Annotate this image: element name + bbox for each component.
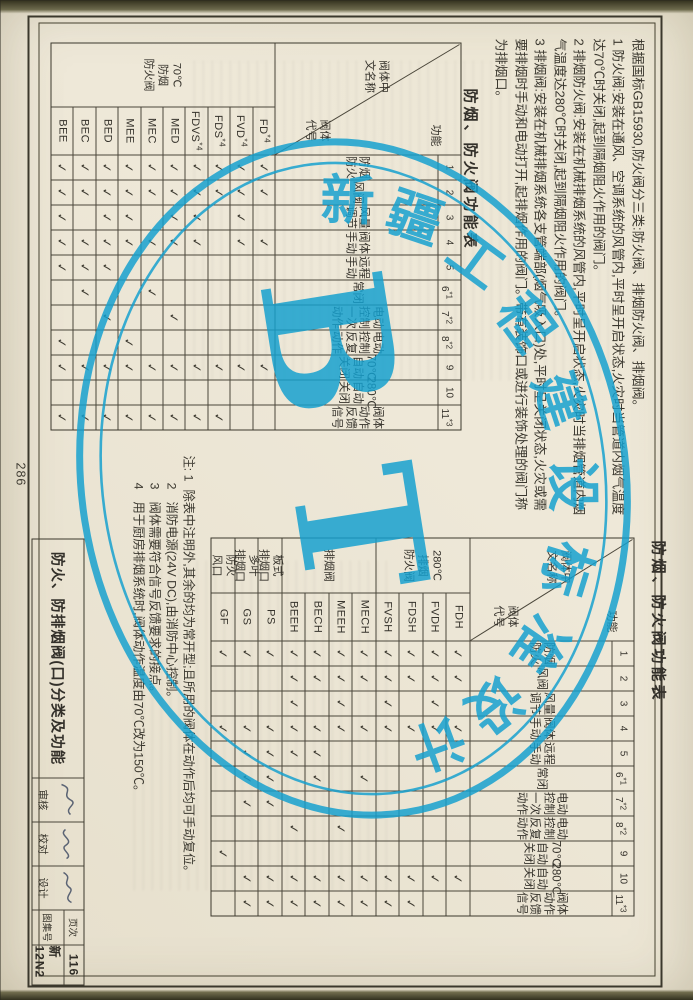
- check-cell: ✓: [422, 691, 446, 716]
- function-number-cell: 7*2: [611, 791, 633, 816]
- check-cell: ✓: [305, 866, 329, 891]
- check-cell: [305, 841, 329, 866]
- check-cell: [207, 305, 229, 330]
- check-cell: [229, 280, 251, 305]
- check-cell: [375, 741, 399, 766]
- header-corner-cell: 功能阀体中文名称阀体代号: [274, 43, 460, 155]
- function-number-cell: 9: [611, 841, 633, 866]
- check-cell: [117, 305, 139, 330]
- check-cell: [207, 205, 229, 230]
- check-cell: [305, 816, 329, 841]
- valve-code-cell: MECH: [352, 593, 376, 641]
- check-cell: ✓: [50, 330, 72, 355]
- title-block: 防火、防排烟阀(口)分类及功能 审核 校对 设计 页次 116 图集号: [31, 538, 84, 985]
- check-cell: ✓: [72, 280, 94, 305]
- function-number-cell: 3: [437, 205, 460, 230]
- function-name-cell: 阀体手动: [469, 716, 611, 741]
- function-name-cell: 远程手动: [469, 741, 611, 766]
- book-page-number: 286: [13, 462, 27, 486]
- function-table-280c: 功能阀体中文名称阀体代号1防烟防火2风阀3风量调节4阀体手动5远程手动6*1常闭…: [211, 538, 634, 916]
- function-number-cell: 2: [611, 666, 633, 691]
- function-name-cell: 常闭: [274, 280, 437, 305]
- check-cell: ✓: [95, 405, 117, 430]
- check-cell: [446, 741, 470, 766]
- valve-name-cell: 防火风口: [211, 538, 235, 593]
- intro-note-line: 1 防火阀:安装在通风、空调系统的风管内,平时呈开启状态,火灾时当管道内烟气温度: [608, 38, 628, 543]
- function-number-cell: 10: [611, 866, 633, 891]
- valve-code-cell: FDH: [446, 593, 470, 641]
- check-cell: [258, 841, 282, 866]
- check-cell: ✓: [140, 230, 162, 255]
- check-cell: ✓: [446, 666, 470, 691]
- check-cell: ✓: [184, 230, 206, 255]
- function-name-cell: 电动控制反复动作: [469, 816, 611, 841]
- check-cell: ✓: [352, 891, 376, 916]
- classification-notes-paragraph: 根据国标GB15930,防火阀分三类:防火阀、排烟防火阀、排烟阀。1 防火阀:安…: [491, 38, 647, 543]
- check-cell: [352, 741, 376, 766]
- check-cell: [252, 280, 274, 305]
- function-name-cell: 280℃自动关闭: [469, 866, 611, 891]
- footnote-number: 4: [129, 455, 146, 501]
- check-cell: ✓: [399, 641, 423, 666]
- title-block-right: 页次 116 图集号 新12N2: [32, 910, 83, 984]
- check-cell: [162, 330, 184, 355]
- intro-note-line: 要排烟时手动和电动打开,起排烟作用的阀门。带有装饰口或进行装饰处理的阀门称: [511, 38, 531, 543]
- corner-label-function: 功能: [604, 610, 618, 632]
- function-number-cell: 6*1: [437, 280, 460, 305]
- check-cell: ✓: [281, 716, 305, 741]
- function-name-cell: 电动控制一次动作: [274, 305, 437, 330]
- check-cell: [375, 766, 399, 791]
- valve-code-cell: GF: [211, 593, 235, 641]
- book-edge-shadow: [0, 989, 693, 1000]
- check-cell: [234, 666, 258, 691]
- check-cell: [252, 380, 274, 405]
- check-cell: [184, 305, 206, 330]
- valve-code-cell: FVDH: [422, 593, 446, 641]
- check-cell: ✓: [117, 355, 139, 380]
- check-cell: ✓: [50, 230, 72, 255]
- valve-code-cell: BEE: [50, 107, 72, 155]
- footnote-text: 阀体需要符合信号反馈要求的接点。: [146, 501, 163, 698]
- check-cell: ✓: [328, 891, 352, 916]
- corner-label-valve-code: 阀体代号: [491, 595, 518, 637]
- check-cell: [229, 305, 251, 330]
- check-cell: ✓: [422, 666, 446, 691]
- check-cell: [446, 841, 470, 866]
- function-number-cell: 1: [611, 641, 633, 666]
- check-cell: [281, 766, 305, 791]
- check-cell: ✓: [184, 205, 206, 230]
- valve-code-cell: BED: [95, 107, 117, 155]
- check-cell: ✓: [328, 816, 352, 841]
- check-cell: ✓: [234, 766, 258, 791]
- footnote-number: 3: [146, 455, 163, 501]
- check-cell: ✓: [252, 180, 274, 205]
- check-cell: [95, 280, 117, 305]
- intro-note-line: 根据国标GB15930,防火阀分三类:防火阀、排烟防火阀、排烟阀。: [628, 38, 648, 543]
- drawing-title: 防火、防排烟阀(口)分类及功能: [32, 539, 83, 778]
- check-cell: [352, 691, 376, 716]
- check-cell: ✓: [281, 866, 305, 891]
- check-cell: ✓: [162, 405, 184, 430]
- check-cell: [252, 205, 274, 230]
- check-cell: [162, 280, 184, 305]
- check-cell: [234, 841, 258, 866]
- check-cell: ✓: [422, 716, 446, 741]
- check-cell: [399, 766, 423, 791]
- footnote-text: 除表中注明外,其余的均为常开型;且所用的阀体在动作后均可手动复位。: [179, 489, 196, 877]
- table2-title: 防烟、防火阀功能表: [648, 540, 669, 702]
- check-cell: ✓: [305, 891, 329, 916]
- check-cell: ✓: [258, 866, 282, 891]
- valve-code-cell: MEE: [117, 107, 139, 155]
- signature-mark: [53, 781, 79, 817]
- check-cell: [399, 841, 423, 866]
- check-cell: ✓: [72, 405, 94, 430]
- footnote-text: 用于厨房排烟系统时,阀体动作温度由70℃改为150℃。: [129, 501, 146, 797]
- function-name-cell: 风阀: [274, 180, 437, 205]
- check-cell: ✓: [258, 741, 282, 766]
- check-cell: [422, 766, 446, 791]
- check-cell: ✓: [229, 155, 251, 180]
- scanned-standard-page: 根据国标GB15930,防火阀分三类:防火阀、排烟防火阀、排烟阀。1 防火阀:安…: [0, 0, 693, 1000]
- check-cell: [229, 405, 251, 430]
- function-name-cell: 阀体动作反馈信号: [274, 405, 437, 430]
- valve-code-cell: FDS*4: [207, 107, 229, 155]
- check-cell: [184, 330, 206, 355]
- valve-code-cell: GS: [234, 593, 258, 641]
- check-cell: [162, 380, 184, 405]
- check-cell: ✓: [162, 305, 184, 330]
- valve-name-cell: 排烟阀: [281, 538, 375, 593]
- check-cell: ✓: [95, 205, 117, 230]
- corner-label-valve-name: 阀体中文名称: [362, 49, 389, 103]
- check-cell: ✓: [72, 355, 94, 380]
- check-cell: [352, 841, 376, 866]
- check-cell: [207, 280, 229, 305]
- function-name-cell: 防烟防火: [274, 155, 437, 180]
- corner-label-function: 功能: [428, 124, 442, 146]
- check-cell: [328, 791, 352, 816]
- sign-field-shenhe: 审核: [32, 778, 83, 822]
- valve-code-cell: FDVS*4: [184, 107, 206, 155]
- sign-label: 设计: [35, 866, 50, 909]
- check-cell: [229, 330, 251, 355]
- check-cell: [184, 380, 206, 405]
- function-number-cell: 10: [437, 380, 460, 405]
- check-cell: [140, 305, 162, 330]
- check-cell: ✓: [305, 641, 329, 666]
- check-cell: [50, 280, 72, 305]
- sign-label: 审核: [35, 778, 50, 821]
- check-cell: ✓: [207, 155, 229, 180]
- check-cell: ✓: [375, 891, 399, 916]
- valve-code-cell: FVSH: [375, 593, 399, 641]
- check-cell: [281, 841, 305, 866]
- header-corner-cell: 功能阀体中文名称阀体代号: [469, 538, 633, 641]
- check-cell: [140, 380, 162, 405]
- check-cell: [72, 330, 94, 355]
- check-cell: ✓: [258, 716, 282, 741]
- check-cell: [140, 330, 162, 355]
- check-cell: [207, 330, 229, 355]
- check-cell: ✓: [352, 666, 376, 691]
- valve-code-cell: FD*4: [252, 107, 274, 155]
- check-cell: ✓: [140, 280, 162, 305]
- check-cell: [229, 255, 251, 280]
- check-cell: [140, 205, 162, 230]
- check-cell: ✓: [281, 891, 305, 916]
- check-cell: ✓: [50, 405, 72, 430]
- check-cell: [95, 330, 117, 355]
- valve-name-cell: 280℃排烟防火阀: [375, 538, 469, 593]
- intro-note-line: 2 排烟防火阀:安装在机械排烟系统的风管内,平时呈开启状态,火灾时当排烟管道内烟: [569, 38, 589, 543]
- check-cell: ✓: [95, 155, 117, 180]
- check-cell: [50, 305, 72, 330]
- check-cell: ✓: [211, 841, 235, 866]
- check-cell: ✓: [207, 405, 229, 430]
- check-cell: ✓: [234, 716, 258, 741]
- function-name-cell: 远程手动: [274, 255, 437, 280]
- check-cell: ✓: [140, 155, 162, 180]
- valve-code-cell: MED: [162, 107, 184, 155]
- check-cell: ✓: [140, 355, 162, 380]
- check-cell: [207, 255, 229, 280]
- check-cell: [211, 866, 235, 891]
- function-number-cell: 4: [611, 716, 633, 741]
- check-cell: ✓: [422, 641, 446, 666]
- check-cell: [422, 741, 446, 766]
- intro-note-line: 为排烟口。: [491, 38, 511, 543]
- check-cell: [399, 816, 423, 841]
- check-cell: [211, 741, 235, 766]
- check-cell: ✓: [95, 180, 117, 205]
- corner-label-valve-name: 阀体中文名称: [544, 544, 571, 589]
- intro-note-line: 3 排烟阀:安装在机械排烟系统各支管端部(烟气吸入口)处,平时呈关闭状态,火灾或…: [530, 38, 550, 543]
- signature-mark: [53, 825, 79, 861]
- check-cell: ✓: [352, 716, 376, 741]
- check-cell: ✓: [184, 180, 206, 205]
- check-cell: ✓: [328, 666, 352, 691]
- valve-name-cell: 70℃防烟防火阀: [50, 43, 274, 107]
- valve-name-cell: 多叶排烟口: [234, 538, 258, 593]
- atlas-no-value: 新12N2: [32, 945, 63, 984]
- check-cell: ✓: [117, 230, 139, 255]
- check-cell: ✓: [50, 255, 72, 280]
- check-cell: [229, 380, 251, 405]
- check-cell: ✓: [50, 355, 72, 380]
- check-cell: [422, 891, 446, 916]
- check-cell: [211, 666, 235, 691]
- check-cell: ✓: [399, 716, 423, 741]
- check-cell: [375, 791, 399, 816]
- check-cell: ✓: [281, 741, 305, 766]
- table-footnotes: 注: 1除表中注明外,其余的均为常开型;且所用的阀体在动作后均可手动复位。2消防…: [129, 455, 196, 955]
- check-cell: ✓: [234, 891, 258, 916]
- check-cell: [422, 841, 446, 866]
- check-cell: [446, 891, 470, 916]
- function-name-cell: 电动控制反复动作: [274, 330, 437, 355]
- check-cell: ✓: [305, 766, 329, 791]
- check-cell: ✓: [229, 230, 251, 255]
- check-cell: ✓: [95, 355, 117, 380]
- function-number-cell: 5: [437, 255, 460, 280]
- check-cell: [50, 380, 72, 405]
- check-cell: [446, 791, 470, 816]
- check-cell: [352, 791, 376, 816]
- function-name-cell: 风量调节: [469, 691, 611, 716]
- function-table-70c: 功能阀体中文名称阀体代号1防烟防火2风阀3风量调节4阀体手动5远程手动6*1常闭…: [50, 43, 460, 430]
- check-cell: ✓: [352, 766, 376, 791]
- check-cell: [252, 255, 274, 280]
- check-cell: ✓: [422, 866, 446, 891]
- sign-field-jiaodui: 校对: [32, 822, 83, 866]
- check-cell: [72, 205, 94, 230]
- check-cell: [211, 791, 235, 816]
- check-cell: [95, 380, 117, 405]
- valve-code-cell: PS: [258, 593, 282, 641]
- check-cell: ✓: [328, 866, 352, 891]
- check-cell: ✓: [258, 891, 282, 916]
- valve-code-cell: BECH: [305, 593, 329, 641]
- check-cell: ✓: [117, 155, 139, 180]
- check-cell: ✓: [281, 691, 305, 716]
- check-cell: ✓: [252, 355, 274, 380]
- check-cell: [234, 691, 258, 716]
- check-cell: ✓: [352, 641, 376, 666]
- check-cell: [252, 405, 274, 430]
- table1-title: 防烟、防火阀功能表: [460, 88, 481, 250]
- signature-mark: [53, 869, 79, 905]
- check-cell: [252, 305, 274, 330]
- check-cell: [399, 741, 423, 766]
- check-cell: ✓: [446, 716, 470, 741]
- function-name-cell: 280℃自动关闭: [274, 380, 437, 405]
- check-cell: [305, 691, 329, 716]
- function-number-cell: 1: [437, 155, 460, 180]
- check-cell: ✓: [162, 180, 184, 205]
- check-cell: ✓: [258, 641, 282, 666]
- check-cell: [328, 841, 352, 866]
- check-cell: ✓: [234, 791, 258, 816]
- check-cell: ✓: [117, 180, 139, 205]
- check-cell: ✓: [234, 641, 258, 666]
- valve-code-cell: MEEH: [328, 593, 352, 641]
- check-cell: ✓: [211, 716, 235, 741]
- check-cell: ✓: [328, 641, 352, 666]
- check-cell: ✓: [140, 180, 162, 205]
- check-cell: ✓: [162, 230, 184, 255]
- function-number-cell: 8*2: [437, 330, 460, 355]
- function-number-cell: 11*3: [437, 405, 460, 430]
- corner-label-valve-code: 阀体代号: [303, 109, 330, 151]
- function-number-cell: 11*3: [611, 891, 633, 916]
- check-cell: [258, 691, 282, 716]
- book-edge-shadow: [0, 0, 693, 13]
- check-cell: [72, 380, 94, 405]
- check-cell: [207, 230, 229, 255]
- check-cell: ✓: [162, 355, 184, 380]
- check-cell: ✓: [184, 355, 206, 380]
- check-cell: [207, 380, 229, 405]
- function-name-cell: 风阀: [469, 666, 611, 691]
- function-name-cell: 阀体手动: [274, 230, 437, 255]
- check-cell: ✓: [95, 255, 117, 280]
- check-cell: [375, 816, 399, 841]
- check-cell: ✓: [50, 155, 72, 180]
- check-cell: ✓: [281, 816, 305, 841]
- check-cell: [352, 816, 376, 841]
- check-cell: ✓: [375, 866, 399, 891]
- function-number-cell: 2: [437, 180, 460, 205]
- check-cell: ✓: [252, 230, 274, 255]
- footnote-text: 消防电源(24V DC),由消防中心控制。: [162, 501, 179, 703]
- check-cell: [117, 280, 139, 305]
- check-cell: ✓: [207, 355, 229, 380]
- intro-note-line: 气温度达280℃时关闭,起到隔烟阻火作用的阀门。: [550, 38, 570, 543]
- check-cell: ✓: [375, 691, 399, 716]
- check-cell: ✓: [399, 666, 423, 691]
- check-cell: [117, 380, 139, 405]
- page-landscape-canvas: 根据国标GB15930,防火阀分三类:防火阀、排烟防火阀、排烟阀。1 防火阀:安…: [0, 0, 693, 1000]
- check-cell: [399, 791, 423, 816]
- check-cell: ✓: [72, 230, 94, 255]
- check-cell: ✓: [252, 155, 274, 180]
- check-cell: ✓: [446, 641, 470, 666]
- check-cell: [446, 816, 470, 841]
- check-cell: ✓: [211, 641, 235, 666]
- check-cell: [211, 891, 235, 916]
- sign-label: 校对: [35, 822, 50, 865]
- function-number-cell: 8*2: [611, 816, 633, 841]
- check-cell: ✓: [117, 330, 139, 355]
- function-number-cell: 5: [611, 741, 633, 766]
- check-cell: [446, 766, 470, 791]
- check-cell: ✓: [72, 155, 94, 180]
- check-cell: [140, 255, 162, 280]
- check-cell: ✓: [281, 666, 305, 691]
- check-cell: ✓: [95, 305, 117, 330]
- check-cell: [258, 666, 282, 691]
- check-cell: [422, 816, 446, 841]
- check-cell: [211, 816, 235, 841]
- valve-code-cell: FDSH: [399, 593, 423, 641]
- function-name-cell: 电动控制一次动作: [469, 791, 611, 816]
- check-cell: ✓: [184, 155, 206, 180]
- check-cell: ✓: [258, 766, 282, 791]
- footnote-number: 2: [162, 455, 179, 501]
- valve-code-cell: BEEH: [281, 593, 305, 641]
- check-cell: [375, 841, 399, 866]
- check-cell: [252, 330, 274, 355]
- function-name-cell: 常闭: [469, 766, 611, 791]
- check-cell: ✓: [399, 891, 423, 916]
- check-cell: [72, 305, 94, 330]
- check-cell: [258, 816, 282, 841]
- function-number-cell: 7*2: [437, 305, 460, 330]
- check-cell: ✓: [117, 405, 139, 430]
- check-cell: ✓: [207, 180, 229, 205]
- check-cell: ✓: [375, 666, 399, 691]
- check-cell: ✓: [184, 405, 206, 430]
- valve-code-cell: BEC: [72, 107, 94, 155]
- function-name-cell: 防烟防火: [469, 641, 611, 666]
- check-cell: ✓: [352, 866, 376, 891]
- check-cell: ✓: [162, 155, 184, 180]
- valve-name-cell: 板式排烟口: [258, 538, 282, 593]
- check-cell: [184, 255, 206, 280]
